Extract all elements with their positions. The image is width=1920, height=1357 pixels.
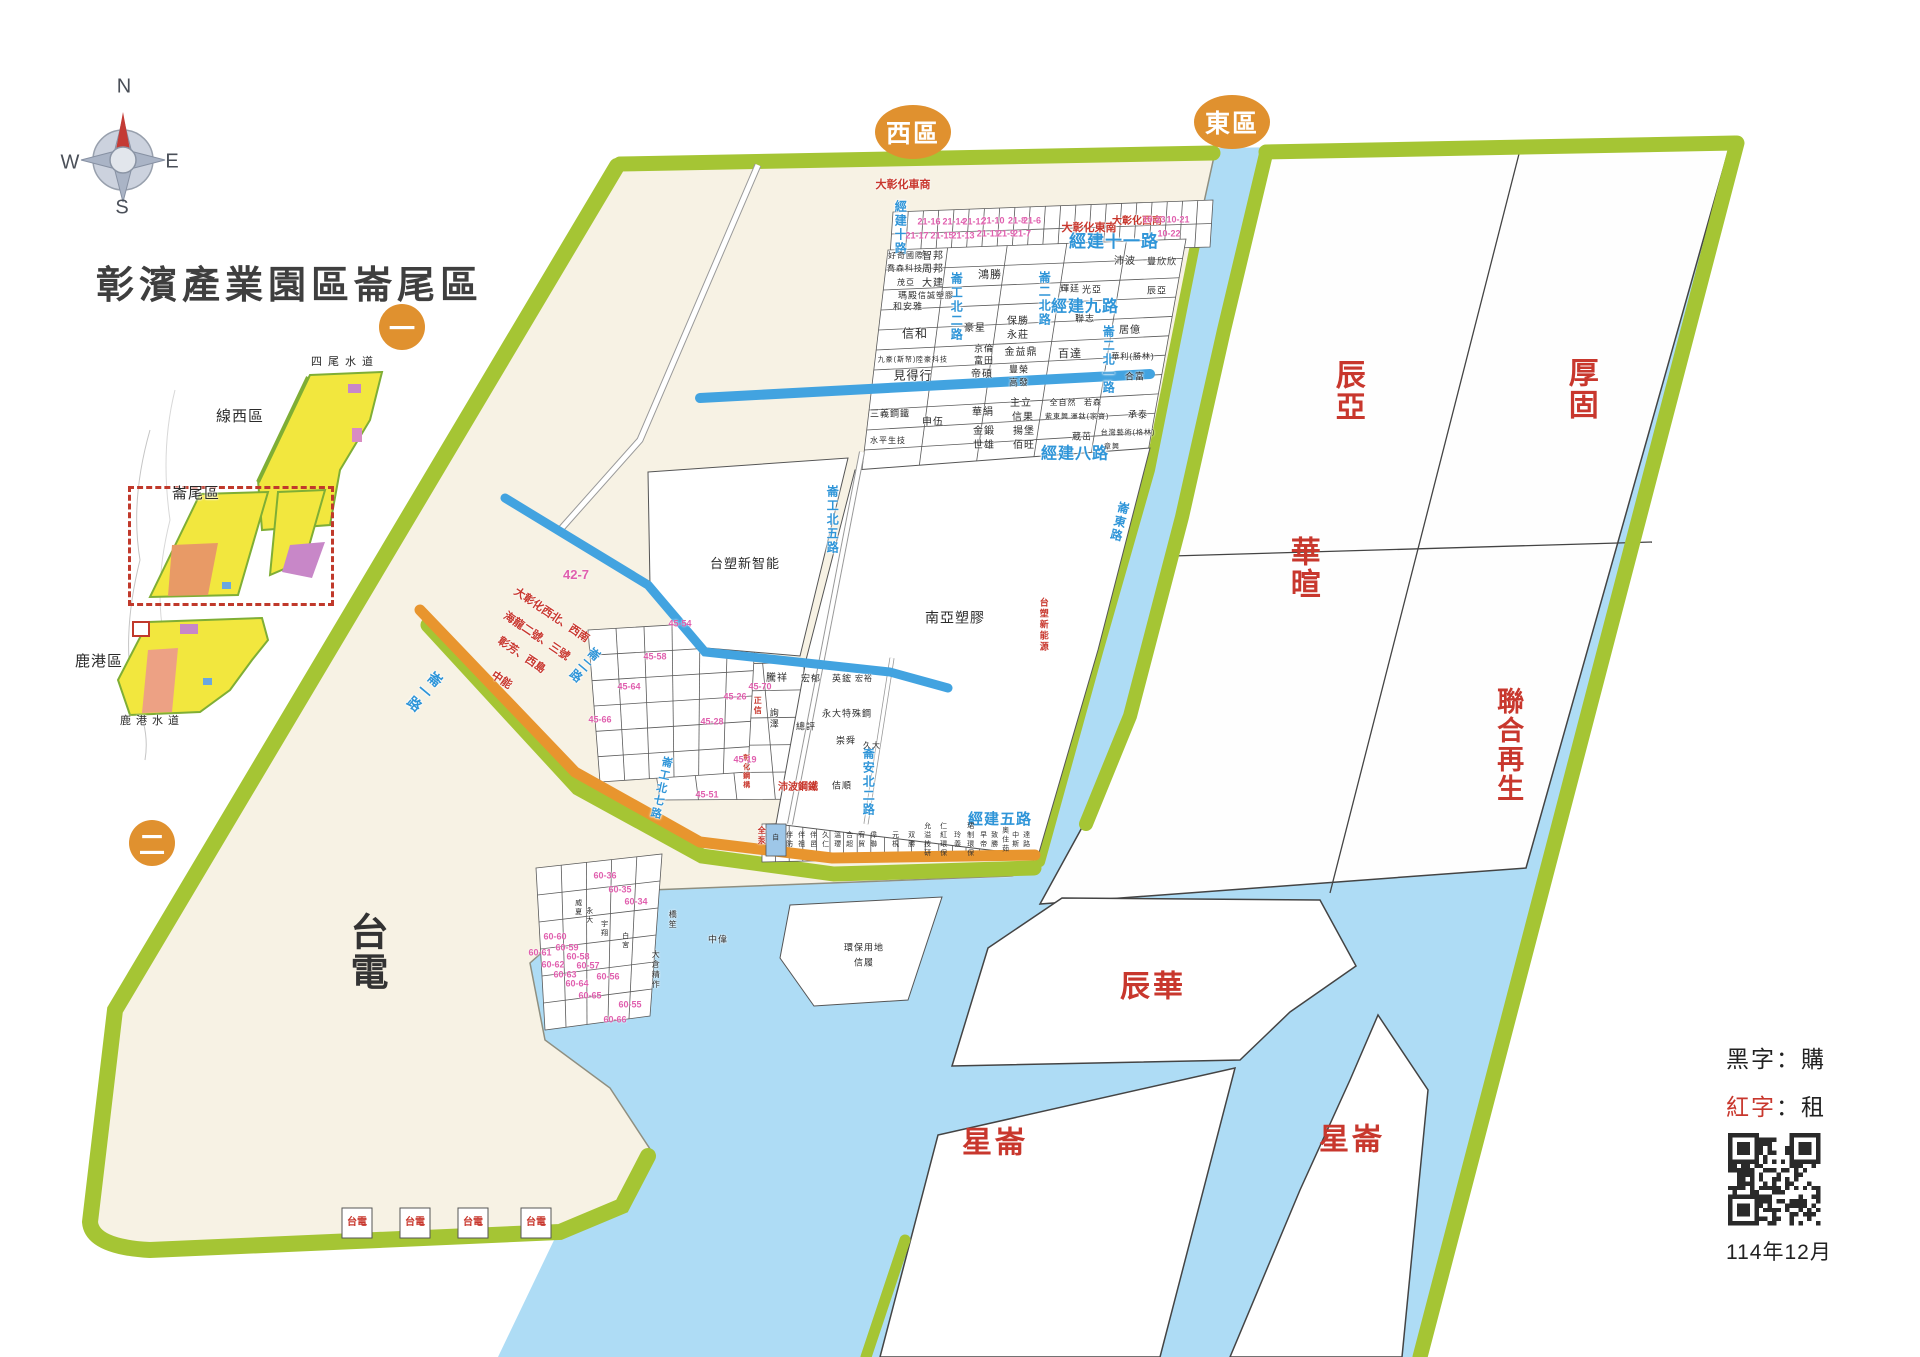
qr-code: [1728, 1133, 1820, 1225]
compass-rose: [81, 112, 165, 202]
badge-west-district: 西區: [875, 105, 951, 159]
compass-e: E: [165, 151, 178, 174]
map-page: 彰濱產業園區崙尾區 N E S W 西區 東區 一 二 四尾水道 線西區 崙尾區…: [0, 0, 1920, 1357]
legend-black-row: 黑字：購: [1726, 1040, 1826, 1074]
inset-focus-rect: [128, 486, 334, 606]
compass-n: N: [117, 76, 131, 99]
map-artwork: [0, 0, 1920, 1357]
legend-red-row: 紅字：租: [1726, 1088, 1826, 1122]
compass-s: S: [115, 197, 128, 220]
badge-marker-one: 一: [379, 304, 425, 350]
compass-w: W: [61, 152, 80, 175]
map-date: 114年12月: [1726, 1236, 1832, 1266]
legend: 黑字：購 紅字：租: [1726, 1040, 1826, 1136]
page-title: 彰濱產業園區崙尾區: [96, 254, 483, 309]
badge-east-district: 東區: [1194, 95, 1270, 149]
badge-marker-two: 二: [129, 820, 175, 866]
